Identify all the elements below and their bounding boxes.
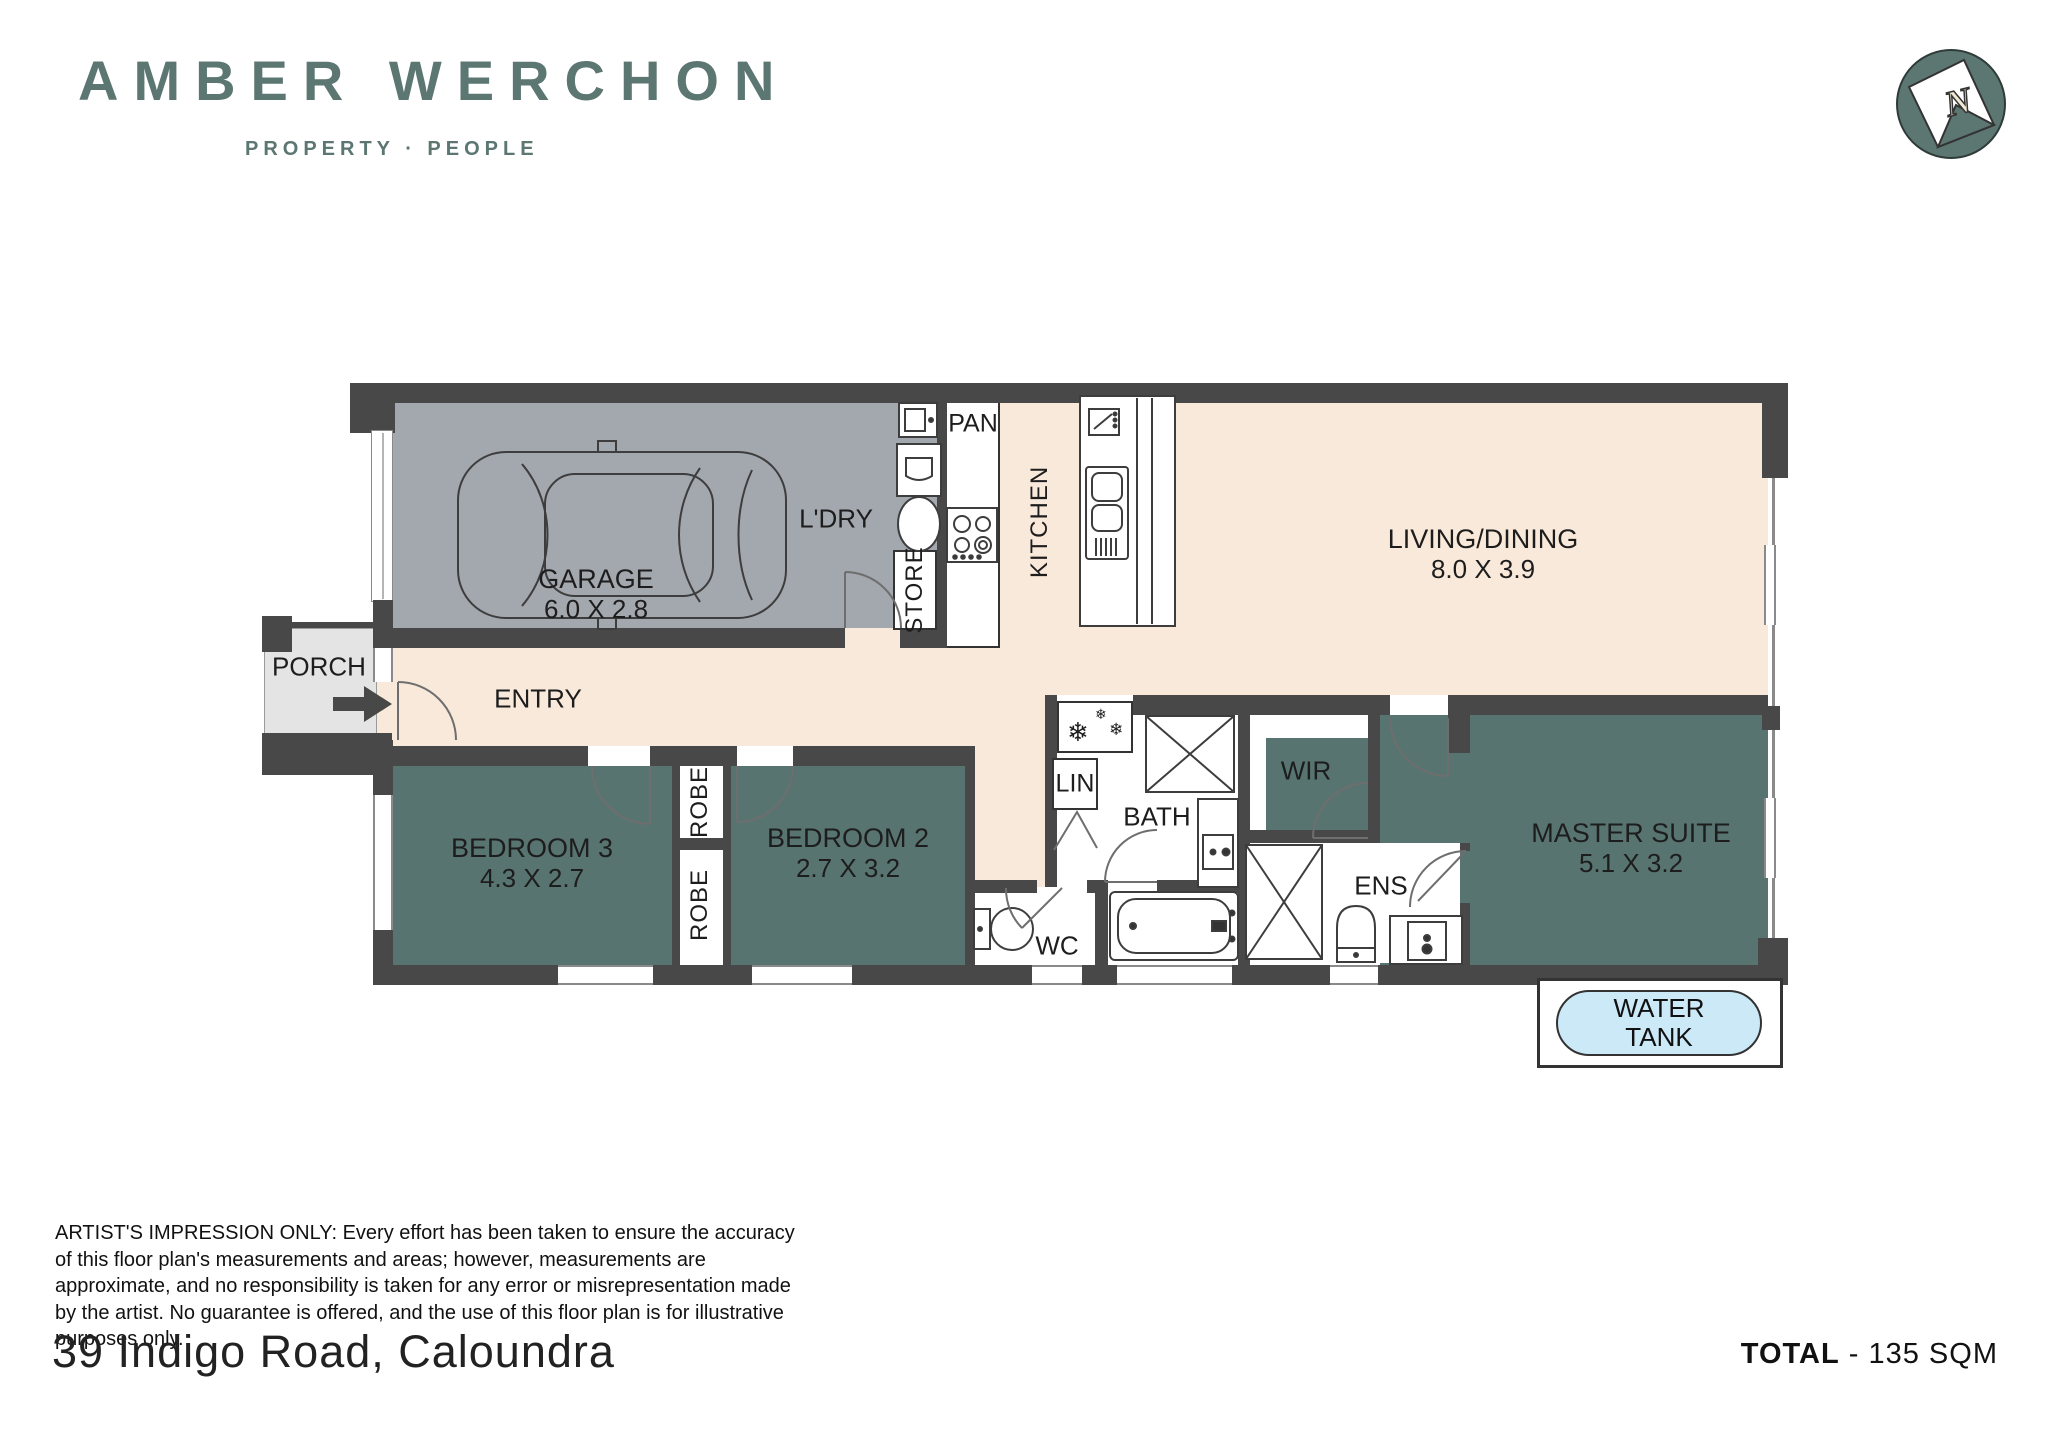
bedroom2-name: BEDROOM 2 bbox=[767, 823, 929, 853]
microwave-icon bbox=[1089, 409, 1119, 435]
laundry-tub-icon bbox=[897, 444, 941, 496]
room-label-robe-upper: ROBE bbox=[686, 766, 714, 838]
room-label-store: STORE bbox=[901, 546, 929, 633]
property-address: 39 Indigo Road, Caloundra bbox=[52, 1326, 615, 1378]
room-label-porch: PORCH bbox=[272, 652, 366, 683]
toilet-icon-wc bbox=[974, 908, 1033, 950]
door-wir bbox=[1313, 783, 1368, 838]
door-garage-entry bbox=[845, 572, 901, 628]
room-label-garage: GARAGE 6.0 X 2.8 bbox=[538, 564, 654, 624]
room-label-wir: WIR bbox=[1281, 756, 1332, 787]
garage-name: GARAGE bbox=[538, 564, 654, 594]
room-label-entry: ENTRY bbox=[494, 684, 582, 715]
bedroom2-dims: 2.7 X 3.2 bbox=[767, 853, 929, 883]
door-bedroom3 bbox=[592, 766, 650, 824]
garage-dims: 6.0 X 2.8 bbox=[538, 594, 654, 624]
stove-icon bbox=[947, 508, 997, 562]
door-linen bbox=[1054, 812, 1097, 850]
laundry-sink-icon bbox=[898, 497, 940, 551]
room-label-living: LIVING/DINING 8.0 X 3.9 bbox=[1388, 524, 1579, 584]
room-label-ens: ENS bbox=[1354, 871, 1407, 902]
door-porch-entry bbox=[398, 682, 456, 740]
room-label-wc: WC bbox=[1035, 931, 1078, 962]
door-ensuite bbox=[1410, 851, 1466, 907]
shower-icon-bath bbox=[1146, 716, 1234, 792]
master-dims: 5.1 X 3.2 bbox=[1531, 848, 1731, 878]
room-label-master: MASTER SUITE 5.1 X 3.2 bbox=[1531, 818, 1731, 878]
room-label-bath: BATH bbox=[1123, 802, 1190, 833]
entry-arrow-icon bbox=[333, 686, 392, 722]
room-label-kitchen: KITCHEN bbox=[1026, 466, 1054, 578]
total-label: TOTAL bbox=[1741, 1338, 1840, 1370]
living-dims: 8.0 X 3.9 bbox=[1388, 554, 1579, 584]
room-label-pantry: PAN bbox=[948, 410, 998, 439]
bathtub-icon bbox=[1110, 892, 1238, 960]
door-bedroom2 bbox=[737, 766, 793, 822]
fridge-icon bbox=[1086, 467, 1128, 559]
floorplan-page: AMBER WERCHON PROPERTY · PEOPLE N bbox=[0, 0, 2048, 1448]
total-area: TOTAL - 135 SQM bbox=[1600, 1338, 1998, 1371]
toilet-icon-ens bbox=[1337, 906, 1375, 962]
door-bath bbox=[1105, 830, 1157, 882]
vanity-icon-ens bbox=[1390, 916, 1462, 964]
vanity-icon-bath bbox=[1198, 799, 1238, 887]
room-label-laundry: L'DRY bbox=[799, 504, 873, 535]
washing-machine-icon bbox=[899, 403, 937, 437]
door-master-hall bbox=[1390, 718, 1448, 776]
living-name: LIVING/DINING bbox=[1388, 524, 1579, 554]
room-label-linen: LIN bbox=[1056, 770, 1095, 799]
room-label-bedroom2: BEDROOM 2 2.7 X 3.2 bbox=[767, 823, 929, 883]
bedroom3-dims: 4.3 X 2.7 bbox=[451, 863, 613, 893]
master-name: MASTER SUITE bbox=[1531, 818, 1731, 848]
room-label-robe-lower: ROBE bbox=[686, 869, 714, 941]
room-label-bedroom3: BEDROOM 3 4.3 X 2.7 bbox=[451, 833, 613, 893]
bedroom3-name: BEDROOM 3 bbox=[451, 833, 613, 863]
total-value: - 135 SQM bbox=[1840, 1338, 1998, 1370]
shower-icon-ens bbox=[1246, 845, 1322, 959]
